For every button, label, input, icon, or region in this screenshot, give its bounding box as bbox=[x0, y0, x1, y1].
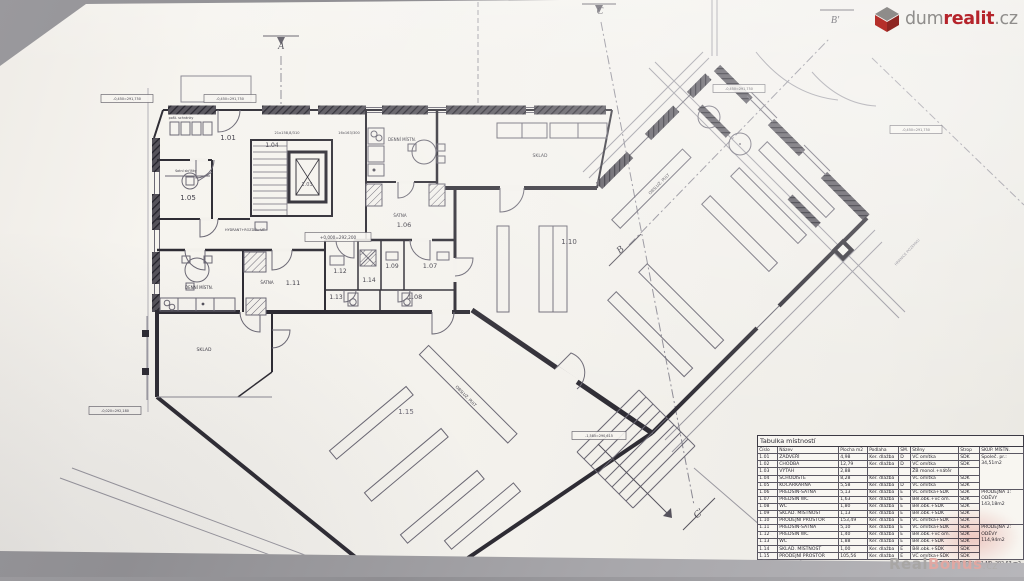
plan-label: 1.13 bbox=[329, 294, 343, 301]
table-cell: E bbox=[899, 510, 911, 517]
table-cell: 1.07 bbox=[758, 496, 778, 503]
table-cell: Ker. dlažba bbox=[868, 532, 899, 539]
table-cell: E bbox=[899, 517, 911, 524]
table-cell: SDK bbox=[959, 546, 980, 553]
plan-label: B' bbox=[831, 15, 840, 26]
plan-label: ŠATNA bbox=[260, 280, 273, 285]
table-cell: E bbox=[899, 546, 911, 553]
table-cell: 1.09 bbox=[758, 510, 778, 517]
table-cell: 1,88 bbox=[839, 539, 868, 546]
table-row: 1.06PŘEDSÍŇ-ŠATNA5,13Ker. dlažbaEVC omít… bbox=[758, 489, 1024, 496]
plan-label: 1.15 bbox=[398, 408, 414, 416]
plan-label: 16x163/300 bbox=[338, 131, 360, 135]
table-cell: VC omítka bbox=[911, 461, 959, 468]
blueprint-paper: 1.011.041.031.05DENNÍ MÍSTN.ŠATNA1.06SKL… bbox=[0, 0, 1024, 577]
table-cell: SDK bbox=[959, 532, 980, 539]
table-cell: 1.06 bbox=[758, 489, 778, 496]
table-header-cell: Název bbox=[778, 447, 839, 454]
table-header-cell: Plocha m2 bbox=[839, 447, 868, 454]
table-cell: 4,98 bbox=[839, 454, 868, 461]
plan-label: +0,000=292,200 bbox=[320, 235, 357, 240]
table-header-cell: Podlaha bbox=[868, 447, 899, 454]
table-cell: Běl.obk.+vc om. bbox=[911, 532, 959, 539]
table-cell: E bbox=[899, 524, 911, 531]
plan-label: HRANICE POZEMKU bbox=[894, 238, 921, 267]
table-cell bbox=[899, 475, 911, 482]
plan-label: šatní skříňky bbox=[175, 169, 196, 173]
table-cell: Běl.obk.+SDK bbox=[911, 510, 959, 517]
table-row: 1.11PŘEDSÍŇ-ŠATNA5,10Ker. dlažbaEVC omít… bbox=[758, 524, 1024, 531]
dumrealit-logo: dumrealit.cz bbox=[874, 5, 1018, 33]
table-cell: VC omítka bbox=[911, 454, 959, 461]
table-cell: SKLAD. MÍSTNOST bbox=[778, 510, 839, 517]
table-cell: Běl.obk.+SDK bbox=[911, 539, 959, 546]
table-cell: 1,13 bbox=[839, 510, 868, 517]
table-cell: PŘEDSÍŇ-ŠATNA bbox=[778, 489, 839, 496]
table-cell: VÝTAH bbox=[778, 468, 839, 475]
table-cell: SDK bbox=[959, 503, 980, 510]
table-cell: PRODEJNÍ PROSTOR bbox=[778, 553, 839, 560]
table-cell bbox=[899, 468, 911, 475]
plan-label: -0,450=291,750 bbox=[216, 97, 244, 101]
plan-label: 1.01 bbox=[220, 134, 236, 142]
table-cell: Ker. dlažba bbox=[868, 489, 899, 496]
table-header-cell: Stěny bbox=[911, 447, 959, 454]
table-cell: 5,13 bbox=[839, 489, 868, 496]
table-cell: SDK bbox=[959, 496, 980, 503]
table-cell: 1.04 bbox=[758, 475, 778, 482]
table-cell: SDK bbox=[959, 475, 980, 482]
photographed-floor-plan: { "branding": { "logo_dum": "dum", "logo… bbox=[0, 0, 1024, 577]
table-cell: E bbox=[899, 489, 911, 496]
table-cell: SDK bbox=[959, 461, 980, 468]
table-header-row: ČísloNázevPlocha m2PodlahaSM.StěnyStropS… bbox=[758, 447, 1024, 454]
table-cell: Ker. dlažba bbox=[868, 524, 899, 531]
table-cell: 1.05 bbox=[758, 482, 778, 489]
table-cell bbox=[959, 468, 980, 475]
plan-label: 1.05 bbox=[180, 194, 196, 202]
plan-label: pošt. schránky bbox=[169, 116, 194, 120]
table-cell: 1.02 bbox=[758, 461, 778, 468]
plan-label: 1.07 bbox=[423, 262, 437, 270]
dumrealit-house-icon bbox=[874, 5, 900, 33]
plan-label: 1.12 bbox=[333, 268, 347, 275]
table-cell: 1.11 bbox=[758, 524, 778, 531]
realbonus-watermark: RealBonus.cz bbox=[889, 555, 998, 573]
table-cell: SDK bbox=[959, 510, 980, 517]
table-cell: Ker. dlažba bbox=[868, 482, 899, 489]
table-cell: SDK bbox=[959, 454, 980, 461]
room-group-cell: PRODEJNA 1: ODĚVY 143,18m2 bbox=[980, 489, 1024, 524]
table-cell: E bbox=[899, 503, 911, 510]
table-cell: VC omítka bbox=[911, 475, 959, 482]
table-cell: 1.01 bbox=[758, 454, 778, 461]
table-cell: Ker. dlažba bbox=[868, 475, 899, 482]
plan-label: A bbox=[277, 41, 285, 52]
table-cell: Ker. dlažba bbox=[868, 454, 899, 461]
table-cell: E bbox=[899, 539, 911, 546]
table-cell: ZÁDVEŘÍ bbox=[778, 454, 839, 461]
table-cell: 1,40 bbox=[839, 532, 868, 539]
table-cell: 1,80 bbox=[839, 503, 868, 510]
plan-label: SKLAD bbox=[533, 153, 548, 159]
plan-label: OBSLUŽ. PULT bbox=[647, 172, 671, 196]
total-value: 292,63 m2 bbox=[995, 562, 1021, 567]
table-cell: 5,58 bbox=[839, 482, 868, 489]
table-cell: 1.08 bbox=[758, 503, 778, 510]
table-cell: Ker. dlažba bbox=[868, 546, 899, 553]
table-cell: E bbox=[899, 496, 911, 503]
table-cell: Běl.obk.+SDK bbox=[911, 503, 959, 510]
table-cell: SDK bbox=[959, 517, 980, 524]
table-cell: SDK bbox=[959, 489, 980, 496]
table-cell: D bbox=[899, 461, 911, 468]
table-cell: Ker. dlažba bbox=[868, 517, 899, 524]
plan-label: 1.14 bbox=[362, 277, 376, 284]
table-cell: Běl.obk.+vc om. bbox=[911, 496, 959, 503]
table-cell: WC bbox=[778, 503, 839, 510]
table-title: Tabulka místností bbox=[758, 436, 1024, 447]
table-cell: 1.14 bbox=[758, 546, 778, 553]
plan-label: DENNÍ MÍSTN. bbox=[185, 285, 213, 290]
plan-label: 1.09 bbox=[385, 263, 399, 270]
table-cell: Běl.obk.+SDK bbox=[911, 546, 959, 553]
table-cell: CHODBA bbox=[778, 461, 839, 468]
table-cell: KOČÁRKÁRNA bbox=[778, 482, 839, 489]
plan-label: HYDRANT+ROZDĚL. ÚT bbox=[225, 227, 266, 232]
table-row: 1.01ZÁDVEŘÍ4,98Ker. dlažbaDVC omítkaSDKS… bbox=[758, 454, 1024, 461]
table-cell: 153,49 bbox=[839, 517, 868, 524]
table-cell: 1,00 bbox=[839, 546, 868, 553]
plan-label: -0,020=292,180 bbox=[101, 409, 129, 413]
table-cell: Ker. dlažba bbox=[868, 461, 899, 468]
table-header-cell: SKUP. MÍSTN. bbox=[980, 447, 1024, 454]
table-cell: D bbox=[899, 482, 911, 489]
plan-label: 1.10 bbox=[561, 238, 577, 246]
plan-label: 1.06 bbox=[397, 221, 411, 229]
table-cell: PRODEJNÍ PROSTOR bbox=[778, 517, 839, 524]
table-cell: 1.10 bbox=[758, 517, 778, 524]
plan-label: 1.08 bbox=[408, 293, 422, 301]
room-group-cell: Společ. pr.: 34,51m2 bbox=[980, 454, 1024, 489]
plan-label: ŠATNA bbox=[393, 213, 406, 218]
plan-label: 1.03 bbox=[301, 182, 312, 188]
table-cell: PŘEDSÍŇ-ŠATNA bbox=[778, 524, 839, 531]
table-cell: VC omítka bbox=[911, 482, 959, 489]
table-cell: SKLAD. MÍSTNOST bbox=[778, 546, 839, 553]
table-cell: 12,79 bbox=[839, 461, 868, 468]
table-cell: VC omítka+SDK bbox=[911, 489, 959, 496]
table-cell: 8,28 bbox=[839, 475, 868, 482]
table-cell: PŘEDSÍŇ WC bbox=[778, 532, 839, 539]
table-cell: 5,10 bbox=[839, 524, 868, 531]
table-cell: SDK bbox=[959, 482, 980, 489]
table-cell: ŽB monol.+nátěr bbox=[911, 468, 959, 475]
table-cell: Ker. dlažba bbox=[868, 539, 899, 546]
table-cell: E bbox=[899, 532, 911, 539]
table-cell: WC bbox=[778, 539, 839, 546]
plan-label: -0,450=291,750 bbox=[113, 97, 141, 101]
table-cell: 1.12 bbox=[758, 532, 778, 539]
table-cell: VC omítka+SDK bbox=[911, 517, 959, 524]
table-cell: VC omítka+SDK bbox=[911, 524, 959, 531]
table-cell: 1.13 bbox=[758, 539, 778, 546]
plan-label: -0,450=291,750 bbox=[725, 87, 753, 91]
plan-label: SKLAD bbox=[197, 347, 212, 353]
table-header-cell: Strop bbox=[959, 447, 980, 454]
plan-label: DENNÍ MÍSTN. bbox=[388, 137, 416, 142]
plan-label: 21x158,8/310 bbox=[274, 131, 300, 135]
table-cell bbox=[868, 468, 899, 475]
table-cell: 105,56 bbox=[839, 553, 868, 560]
table-cell: 1.15 bbox=[758, 553, 778, 560]
table-header-cell: Číslo bbox=[758, 447, 778, 454]
hall-115 bbox=[142, 312, 652, 577]
table-cell: SDK bbox=[959, 524, 980, 531]
table-cell: 2,88 bbox=[839, 468, 868, 475]
table-cell: PŘEDSÍŇ WC bbox=[778, 496, 839, 503]
table-cell: Ker. dlažba bbox=[868, 503, 899, 510]
dumrealit-wordmark: dumrealit.cz bbox=[905, 9, 1018, 29]
plan-label: C bbox=[597, 6, 604, 17]
table-cell: D bbox=[899, 454, 911, 461]
table-header-cell: SM. bbox=[899, 447, 911, 454]
plan-label: OBSLUŽ. PULT bbox=[454, 384, 478, 408]
table-cell: Ker. dlažba bbox=[868, 510, 899, 517]
table-cell: Ker. dlažba bbox=[868, 496, 899, 503]
plan-label: 1.04 bbox=[265, 142, 279, 149]
room-table: Tabulka místností ČísloNázevPlocha m2Pod… bbox=[757, 435, 1023, 567]
hall-110 bbox=[472, 65, 870, 433]
table-cell: SDK bbox=[959, 539, 980, 546]
table-cell: 1,63 bbox=[839, 496, 868, 503]
plan-label: 1.11 bbox=[286, 279, 300, 287]
table-cell: 1.03 bbox=[758, 468, 778, 475]
plan-label: -0,450=291,750 bbox=[902, 128, 930, 132]
table-cell: SCHODIŠTĚ bbox=[778, 475, 839, 482]
plan-label: -1,585=290,615 bbox=[585, 434, 613, 438]
